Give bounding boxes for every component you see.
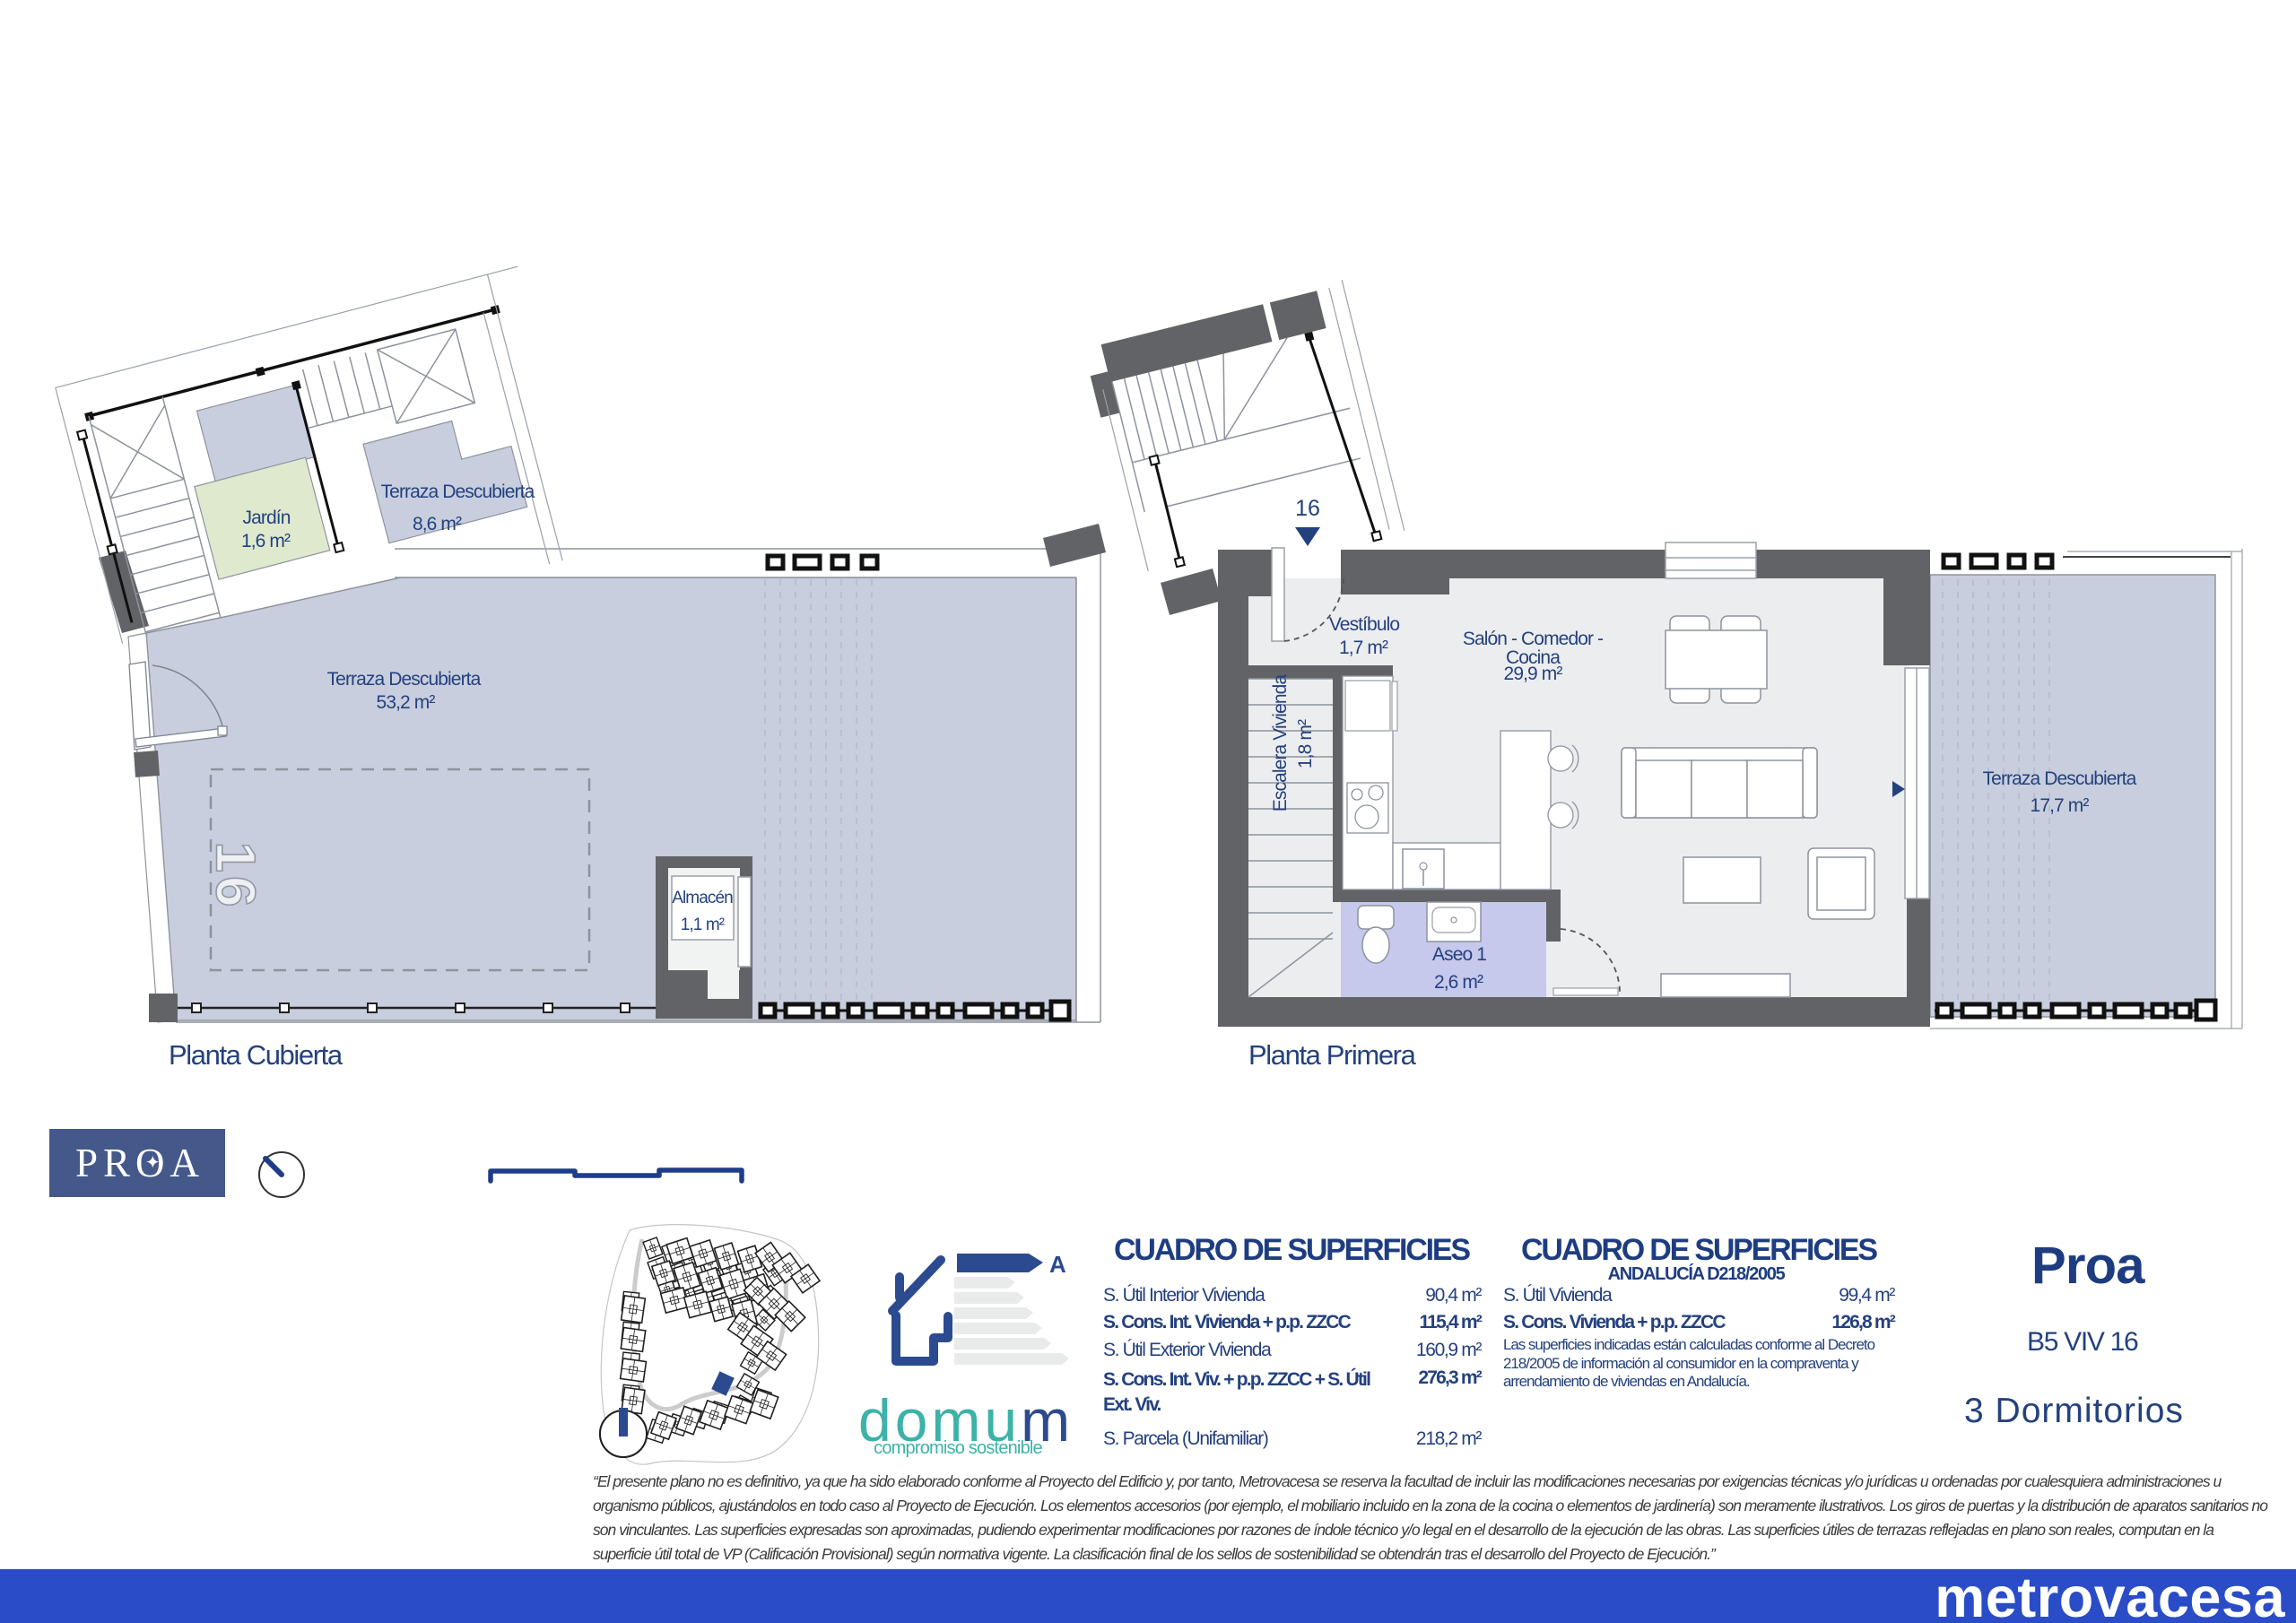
- svg-text:Planta Primera: Planta Primera: [1248, 1039, 1417, 1071]
- svg-text:1,7 m²: 1,7 m²: [1339, 638, 1388, 658]
- svg-text:1,1 m²: 1,1 m²: [681, 916, 725, 934]
- svg-text:Terraza Descubierta: Terraza Descubierta: [327, 669, 482, 690]
- svg-text:53,2 m²: 53,2 m²: [377, 692, 436, 713]
- svg-text:Terraza Descubierta: Terraza Descubierta: [1983, 768, 2137, 789]
- svg-text:1,6 m²: 1,6 m²: [241, 531, 291, 551]
- svg-text:16: 16: [204, 842, 266, 911]
- svg-text:A: A: [1049, 1251, 1066, 1278]
- svg-text:17,7 m²: 17,7 m²: [2031, 795, 2090, 816]
- svg-text:Vestíbulo: Vestíbulo: [1329, 614, 1400, 635]
- svg-text:Jardín: Jardín: [243, 508, 291, 528]
- svg-text:29,9 m²: 29,9 m²: [1504, 664, 1563, 684]
- svg-text:8,6 m²: 8,6 m²: [413, 514, 462, 534]
- svg-text:Aseo 1: Aseo 1: [1432, 944, 1486, 965]
- svg-text:Escalera Vivienda: Escalera Vivienda: [1270, 674, 1291, 812]
- svg-text:Planta Cubierta: Planta Cubierta: [169, 1039, 344, 1071]
- svg-text:1,8 m²: 1,8 m²: [1295, 719, 1316, 768]
- svg-text:Salón - Comedor -: Salón - Comedor -: [1463, 629, 1604, 649]
- svg-text:2,6 m²: 2,6 m²: [1434, 972, 1483, 993]
- svg-text:16: 16: [1295, 496, 1320, 521]
- svg-text:Terraza Descubierta: Terraza Descubierta: [381, 482, 535, 502]
- svg-text:Almacén: Almacén: [672, 889, 733, 907]
